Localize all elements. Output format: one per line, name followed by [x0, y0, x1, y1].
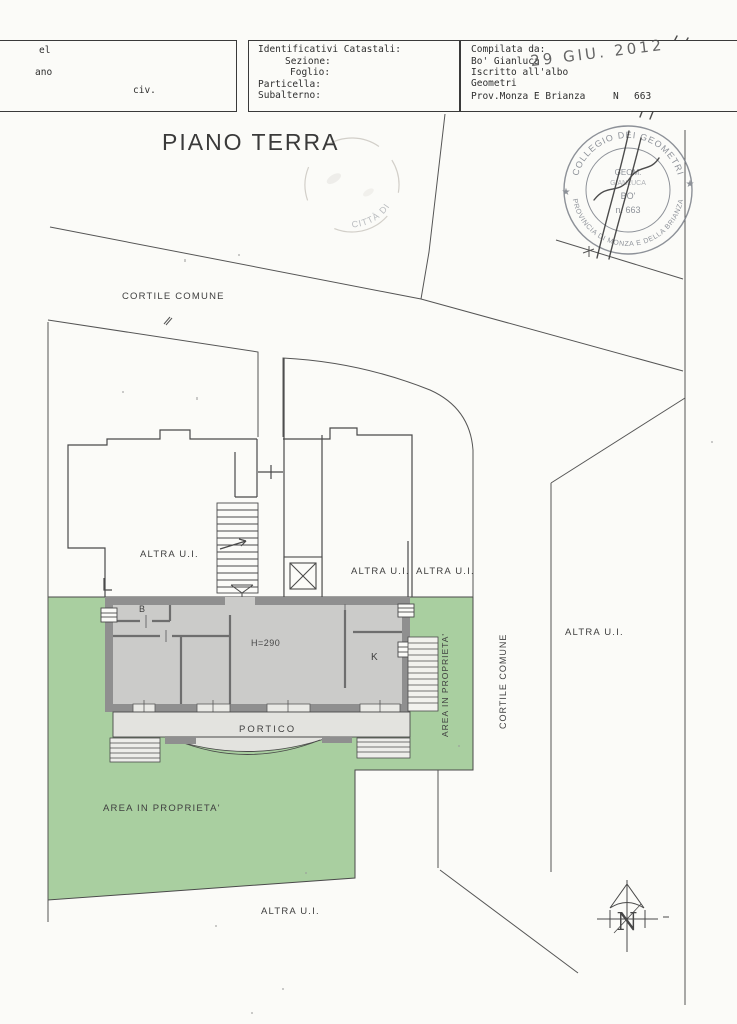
label-ceiling-height: H=290: [251, 638, 280, 648]
label-cortile-comune-top: CORTILE COMUNE: [122, 291, 225, 302]
label-portico: PORTICO: [239, 724, 296, 735]
page-title: PIANO TERRA: [162, 129, 340, 156]
owner-line-2: ano: [35, 67, 52, 79]
label-area-proprieta-bottom: AREA IN PROPRIETA': [103, 803, 221, 814]
label-cortile-comune-vertical: CORTILE COMUNE: [498, 634, 508, 729]
subject-unit: [101, 597, 414, 716]
label-room-b: B: [139, 604, 145, 614]
owner-line-1: el: [39, 45, 50, 57]
compiler-n-label: N: [613, 91, 619, 103]
north-letter: N: [617, 908, 638, 936]
label-altra-ui-right: ALTRA U.I.: [565, 627, 624, 638]
stamp-center-bo: BO': [621, 191, 636, 201]
side-stair: [408, 637, 438, 711]
label-altra-ui-bottom: ALTRA U.I.: [261, 906, 320, 917]
elevator-shaft: [284, 557, 322, 597]
header-cadastral-box: Identificativi Catastali: Sezione: Fogli…: [248, 40, 460, 112]
stamp-center-number: n. 663: [615, 205, 640, 215]
label-room-k: K: [371, 652, 378, 663]
cadastral-title: Identificativi Catastali:: [258, 44, 401, 56]
site-plan-drawing: N CITTÀ DI COLLEGIO DEI GEOMETRI PROVINC: [0, 0, 737, 1024]
header-owner-box: el ano civ.: [0, 40, 237, 112]
compiler-albo-2: Geometri: [471, 78, 517, 90]
unit-interior: [113, 605, 402, 704]
cadastral-foglio: Foglio:: [290, 67, 330, 79]
label-altra-ui-3: ALTRA U.I.: [416, 566, 475, 577]
label-altra-ui-1: ALTRA U.I.: [140, 549, 199, 560]
staircase: [217, 503, 258, 593]
label-area-proprieta-vertical: AREA IN PROPRIETA': [440, 633, 450, 737]
cadastral-subalterno: Subalterno:: [258, 90, 321, 102]
compiler-number: 663: [634, 91, 651, 103]
cadastral-sezione: Sezione:: [285, 56, 331, 68]
cadastral-particella: Particella:: [258, 79, 321, 91]
scanned-cadastral-plan-page: N CITTÀ DI COLLEGIO DEI GEOMETRI PROVINC: [0, 0, 737, 1024]
label-altra-ui-2: ALTRA U.I.: [351, 566, 410, 577]
compiler-prov: Prov.Monza E Brianza: [471, 91, 585, 103]
owner-line-3: civ.: [133, 85, 156, 97]
stamp-star-left: ★: [562, 187, 571, 198]
compiler-albo: Iscritto all'albo: [471, 67, 568, 79]
stamp-star-right: ★: [686, 179, 695, 190]
